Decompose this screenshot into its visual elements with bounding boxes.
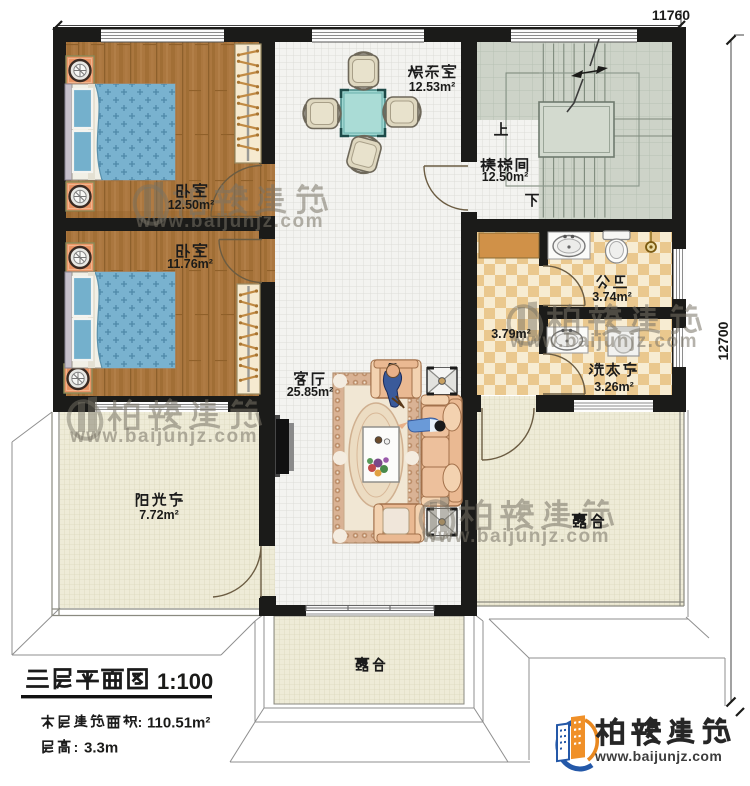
svg-text:www.baijunjz.com: www.baijunjz.com [421, 526, 610, 547]
svg-text:www.baijunjz.com: www.baijunjz.com [69, 426, 258, 447]
svg-text:1:100: 1:100 [157, 669, 213, 694]
svg-text:www.baijunjz.com: www.baijunjz.com [594, 748, 722, 764]
svg-text:11760: 11760 [652, 7, 690, 23]
svg-text:www.baijunjz.com: www.baijunjz.com [509, 331, 698, 352]
svg-text:12.53m²: 12.53m² [409, 80, 456, 94]
svg-text:12700: 12700 [715, 321, 731, 360]
svg-text:3.74m²: 3.74m² [592, 290, 632, 304]
svg-text:12.50m²: 12.50m² [482, 170, 529, 184]
svg-text:3.3m: 3.3m [84, 740, 118, 757]
svg-text:www.baijunjz.com: www.baijunjz.com [135, 211, 324, 232]
svg-text:11.76m²: 11.76m² [167, 257, 213, 271]
svg-text:110.51m²: 110.51m² [147, 715, 210, 732]
svg-text::: : [138, 714, 143, 730]
svg-text:12.50m²: 12.50m² [168, 198, 215, 212]
svg-text::: : [74, 739, 79, 755]
svg-text:3.79m²: 3.79m² [491, 327, 531, 341]
svg-text:3.26m²: 3.26m² [594, 380, 634, 394]
svg-text:25.85m²: 25.85m² [287, 385, 334, 399]
svg-text:7.72m²: 7.72m² [139, 508, 179, 522]
